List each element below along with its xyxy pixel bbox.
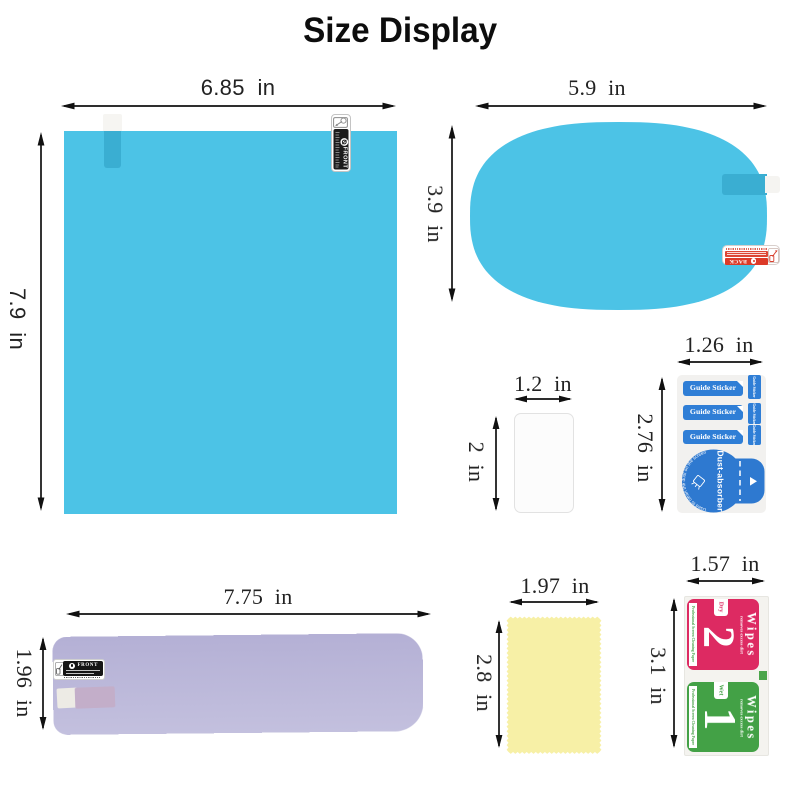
svg-text:FRONT: FRONT	[342, 146, 348, 168]
svg-text:Dust-absorber: Dust-absorber	[716, 450, 726, 512]
